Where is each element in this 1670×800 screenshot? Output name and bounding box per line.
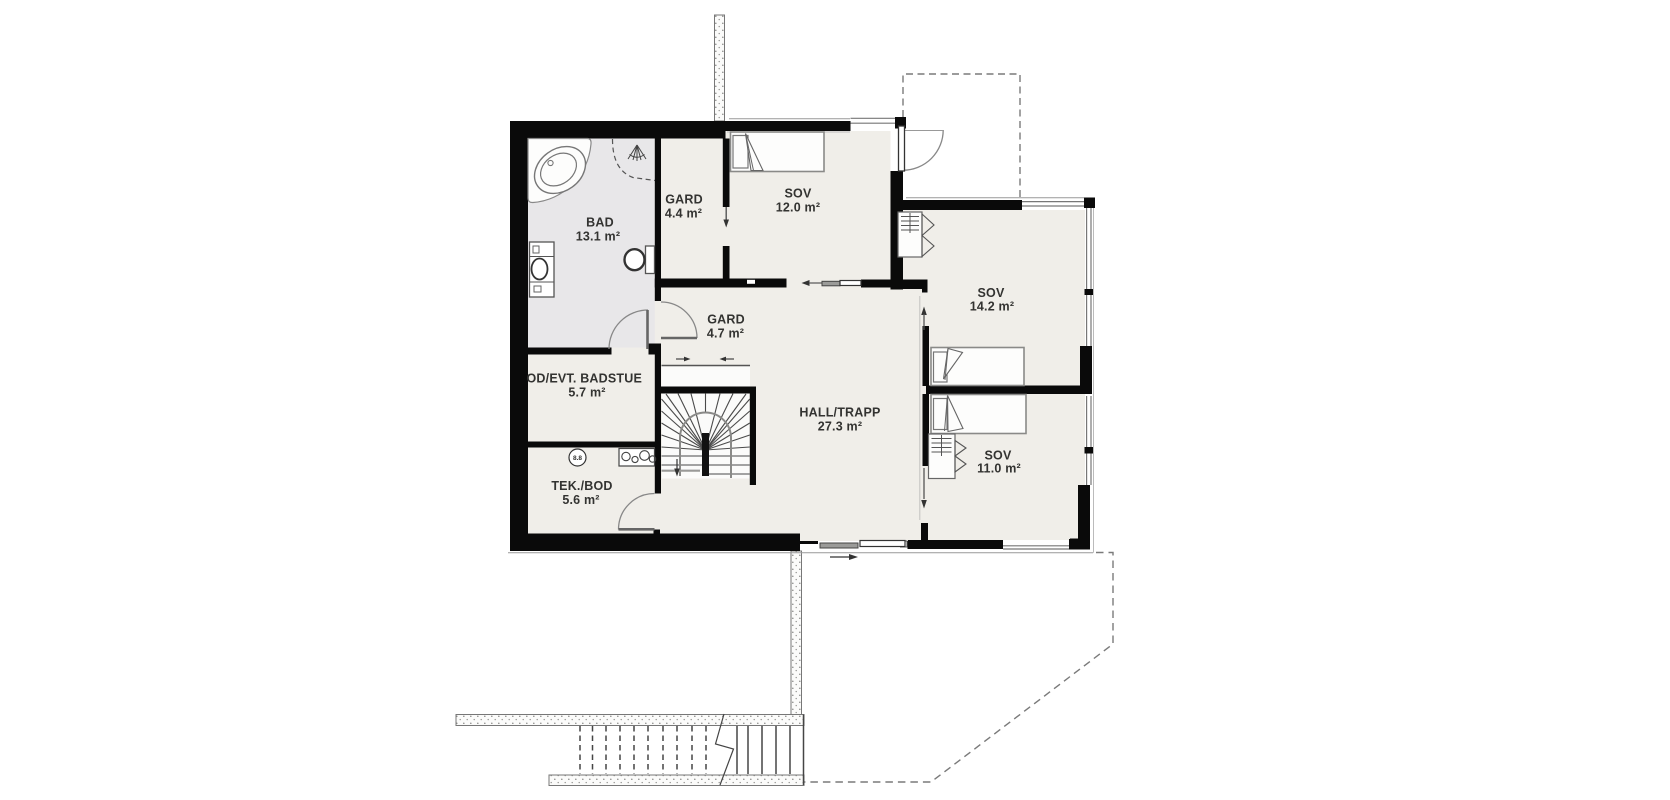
svg-text:HALL/TRAPP: HALL/TRAPP bbox=[799, 406, 880, 420]
svg-text:27.3 m²: 27.3 m² bbox=[818, 420, 862, 434]
svg-text:OD/EVT. BADSTUE: OD/EVT. BADSTUE bbox=[527, 372, 643, 386]
svg-text:8.8: 8.8 bbox=[573, 455, 582, 462]
svg-text:5.6 m²: 5.6 m² bbox=[562, 493, 599, 507]
svg-text:SOV: SOV bbox=[978, 286, 1005, 300]
svg-text:GARD: GARD bbox=[707, 313, 745, 327]
svg-text:4.4 m²: 4.4 m² bbox=[665, 207, 702, 221]
svg-text:GARD: GARD bbox=[665, 193, 703, 207]
svg-text:5.7 m²: 5.7 m² bbox=[568, 386, 605, 400]
svg-text:SOV: SOV bbox=[985, 449, 1012, 463]
svg-text:TEK./BOD: TEK./BOD bbox=[551, 479, 612, 493]
svg-text:13.1 m²: 13.1 m² bbox=[576, 230, 620, 244]
svg-text:11.0 m²: 11.0 m² bbox=[977, 462, 1021, 476]
svg-text:SOV: SOV bbox=[785, 187, 812, 201]
svg-text:12.0 m²: 12.0 m² bbox=[776, 201, 820, 215]
svg-text:BAD: BAD bbox=[586, 216, 614, 230]
svg-text:14.2 m²: 14.2 m² bbox=[970, 300, 1014, 314]
svg-text:4.7 m²: 4.7 m² bbox=[707, 327, 744, 341]
